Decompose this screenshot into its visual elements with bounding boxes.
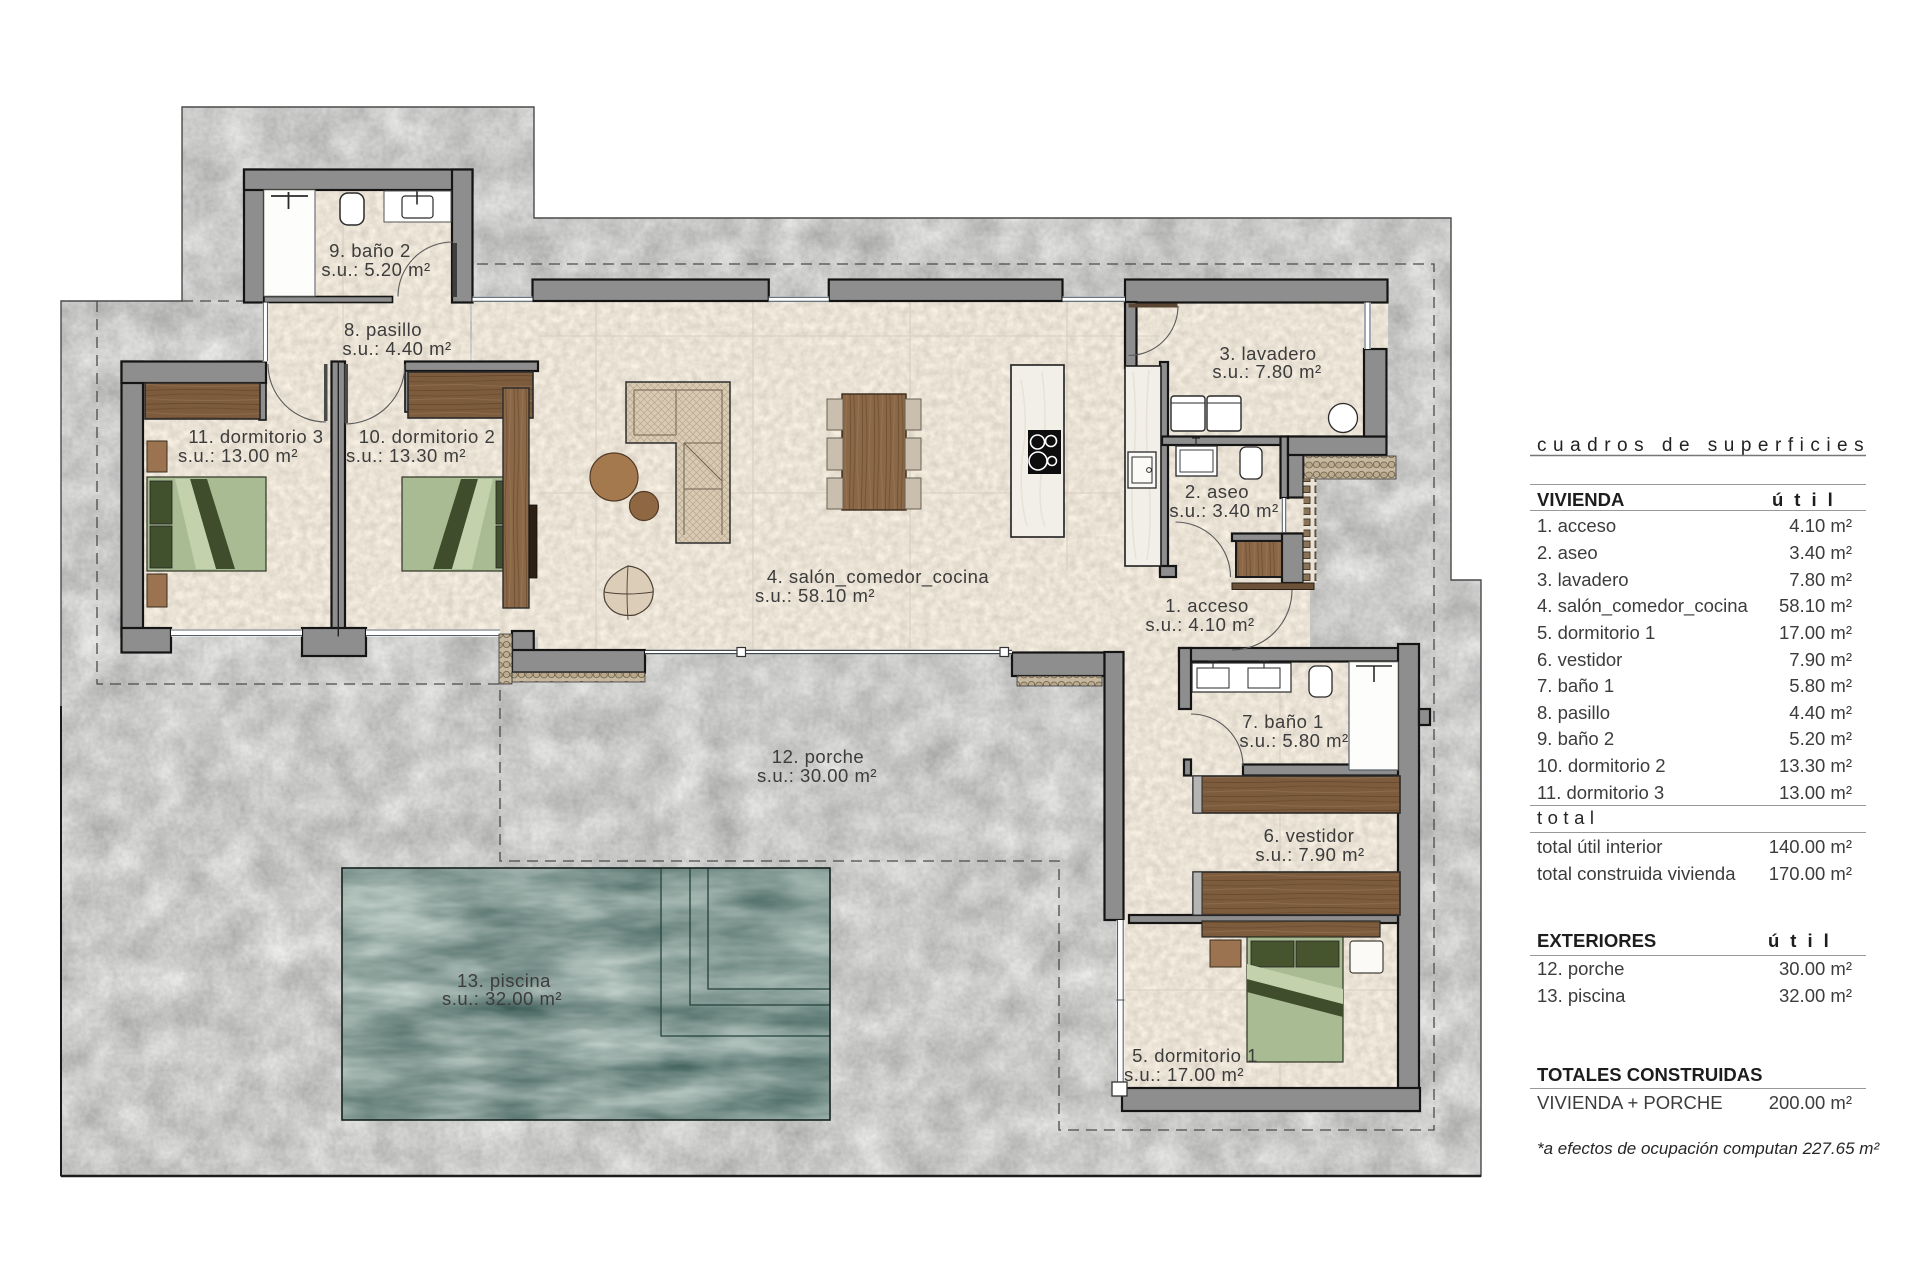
svg-text:32.00 m²: 32.00 m² bbox=[1779, 985, 1852, 1006]
svg-text:VIVIENDA: VIVIENDA bbox=[1537, 489, 1624, 510]
svg-text:*a efectos de ocupación comput: *a efectos de ocupación computan 227.65 … bbox=[1537, 1139, 1880, 1158]
svg-text:8. pasillo: 8. pasillo bbox=[344, 319, 422, 340]
svg-text:6. vestidor: 6. vestidor bbox=[1264, 825, 1355, 846]
svg-text:140.00 m²: 140.00 m² bbox=[1769, 836, 1852, 857]
svg-text:7. baño 1: 7. baño 1 bbox=[1537, 675, 1614, 696]
svg-text:4. salón_comedor_cocina: 4. salón_comedor_cocina bbox=[1537, 595, 1749, 617]
svg-text:s.u.: 5.80 m²: s.u.: 5.80 m² bbox=[1239, 730, 1348, 751]
svg-text:4.10 m²: 4.10 m² bbox=[1789, 515, 1852, 536]
svg-text:cuadros de superficies: cuadros de superficies bbox=[1537, 435, 1870, 456]
svg-text:12. porche: 12. porche bbox=[772, 746, 864, 767]
svg-text:TOTALES CONSTRUIDAS: TOTALES CONSTRUIDAS bbox=[1537, 1064, 1762, 1085]
svg-text:13. piscina: 13. piscina bbox=[1537, 985, 1626, 1006]
svg-text:7.90 m²: 7.90 m² bbox=[1789, 649, 1852, 670]
svg-text:13.00 m²: 13.00 m² bbox=[1779, 782, 1852, 803]
svg-text:10. dormitorio 2: 10. dormitorio 2 bbox=[1537, 755, 1666, 776]
svg-text:1. acceso: 1. acceso bbox=[1165, 595, 1249, 616]
svg-text:útil: útil bbox=[1772, 489, 1844, 510]
svg-text:2. aseo: 2. aseo bbox=[1185, 481, 1249, 502]
svg-text:11. dormitorio 3: 11. dormitorio 3 bbox=[188, 426, 323, 447]
svg-text:VIVIENDA + PORCHE: VIVIENDA + PORCHE bbox=[1537, 1092, 1723, 1113]
svg-text:s.u.: 58.10 m²: s.u.: 58.10 m² bbox=[755, 585, 875, 606]
svg-text:s.u.: 4.10 m²: s.u.: 4.10 m² bbox=[1145, 614, 1254, 635]
svg-text:13.30 m²: 13.30 m² bbox=[1779, 755, 1852, 776]
svg-text:s.u.: 5.20 m²: s.u.: 5.20 m² bbox=[321, 259, 430, 280]
svg-text:9. baño 2: 9. baño 2 bbox=[329, 240, 411, 261]
svg-text:17.00 m²: 17.00 m² bbox=[1779, 622, 1852, 643]
svg-text:58.10 m²: 58.10 m² bbox=[1779, 595, 1852, 616]
svg-text:s.u.: 7.80 m²: s.u.: 7.80 m² bbox=[1212, 361, 1321, 382]
svg-text:12. porche: 12. porche bbox=[1537, 958, 1624, 979]
svg-text:8. pasillo: 8. pasillo bbox=[1537, 702, 1610, 723]
svg-text:total construida vivienda: total construida vivienda bbox=[1537, 863, 1736, 884]
svg-text:total: total bbox=[1537, 807, 1599, 828]
svg-text:s.u.: 7.90 m²: s.u.: 7.90 m² bbox=[1255, 844, 1364, 865]
svg-text:5. dormitorio 1: 5. dormitorio 1 bbox=[1132, 1045, 1258, 1066]
svg-text:170.00 m²: 170.00 m² bbox=[1769, 863, 1852, 884]
svg-text:7. baño 1: 7. baño 1 bbox=[1242, 711, 1324, 732]
svg-text:s.u.: 17.00 m²: s.u.: 17.00 m² bbox=[1124, 1064, 1244, 1085]
svg-text:5. dormitorio 1: 5. dormitorio 1 bbox=[1537, 622, 1655, 643]
svg-text:30.00 m²: 30.00 m² bbox=[1779, 958, 1852, 979]
svg-text:11. dormitorio 3: 11. dormitorio 3 bbox=[1537, 782, 1664, 803]
svg-text:total útil interior: total útil interior bbox=[1537, 836, 1662, 857]
svg-text:7.80 m²: 7.80 m² bbox=[1789, 569, 1852, 590]
svg-text:s.u.: 3.40 m²: s.u.: 3.40 m² bbox=[1169, 500, 1278, 521]
svg-text:s.u.: 13.00 m²: s.u.: 13.00 m² bbox=[178, 445, 298, 466]
svg-text:6. vestidor: 6. vestidor bbox=[1537, 649, 1622, 670]
svg-text:5.20 m²: 5.20 m² bbox=[1789, 728, 1852, 749]
svg-text:s.u.: 4.40 m²: s.u.: 4.40 m² bbox=[342, 338, 451, 359]
svg-text:10. dormitorio 2: 10. dormitorio 2 bbox=[359, 426, 496, 447]
svg-text:3.40 m²: 3.40 m² bbox=[1789, 542, 1852, 563]
svg-text:EXTERIORES: EXTERIORES bbox=[1537, 930, 1656, 951]
svg-text:9. baño 2: 9. baño 2 bbox=[1537, 728, 1614, 749]
svg-text:s.u.: 13.30 m²: s.u.: 13.30 m² bbox=[346, 445, 466, 466]
svg-text:5.80 m²: 5.80 m² bbox=[1789, 675, 1852, 696]
svg-text:200.00 m²: 200.00 m² bbox=[1769, 1092, 1852, 1113]
svg-text:s.u.: 30.00 m²: s.u.: 30.00 m² bbox=[757, 765, 877, 786]
svg-text:útil: útil bbox=[1768, 930, 1840, 951]
svg-text:4.40 m²: 4.40 m² bbox=[1789, 702, 1852, 723]
svg-text:s.u.: 32.00 m²: s.u.: 32.00 m² bbox=[442, 988, 562, 1009]
svg-text:1. acceso: 1. acceso bbox=[1537, 515, 1616, 536]
svg-text:3. lavadero: 3. lavadero bbox=[1537, 569, 1629, 590]
svg-text:2. aseo: 2. aseo bbox=[1537, 542, 1598, 563]
